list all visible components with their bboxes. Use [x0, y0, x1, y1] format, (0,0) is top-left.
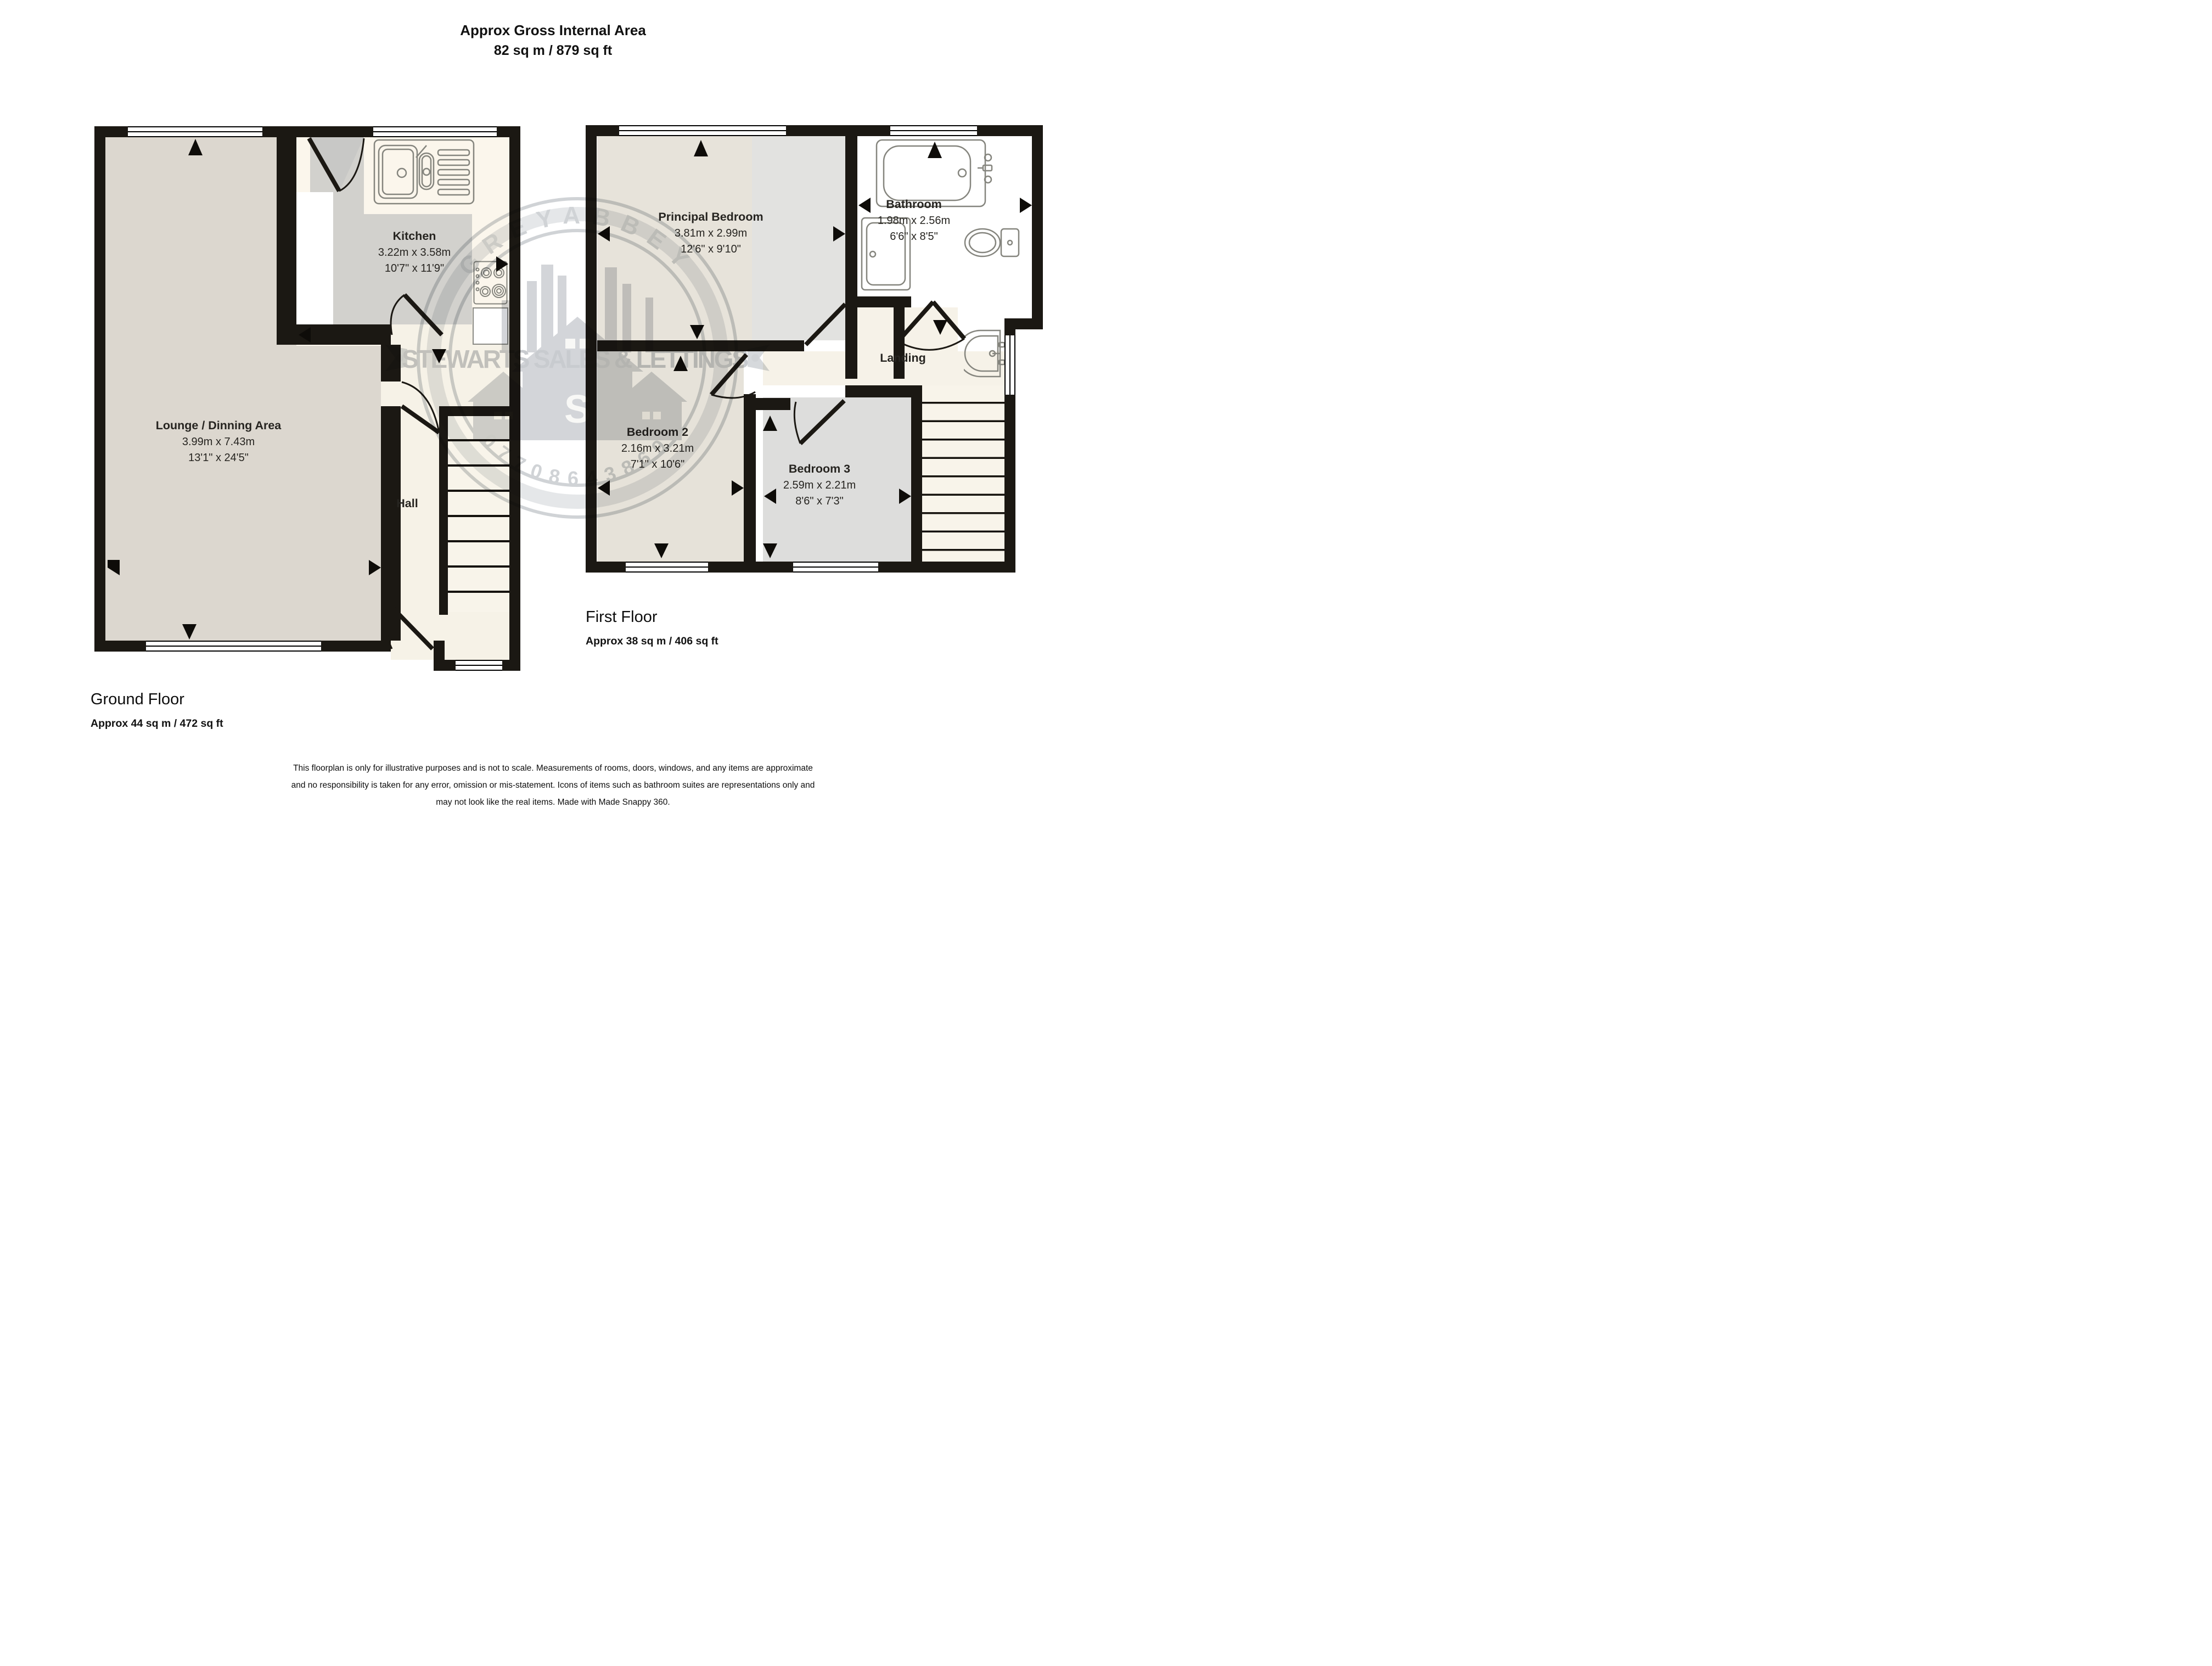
- door-swing-bedroom2: [711, 355, 755, 398]
- lounge-imperial: 13'1" x 24'5": [156, 452, 282, 464]
- room-label-lounge: Lounge / Dinning Area 3.99m x 7.43m 13'1…: [156, 419, 282, 464]
- door-swing-back: [309, 137, 364, 191]
- disclaimer: This floorplan is only for illustrative …: [0, 760, 1106, 811]
- door-swing-front: [386, 608, 433, 649]
- first-floor-heading: First Floor Approx 38 sq m / 406 sq ft: [586, 608, 718, 648]
- ground-floor-title: Ground Floor: [91, 691, 223, 709]
- disclaimer-line1: This floorplan is only for illustrative …: [0, 760, 1106, 777]
- direction-markers-ground: [108, 139, 508, 640]
- kitchen-metric: 3.22m x 3.58m: [378, 246, 451, 259]
- room-label-landing: Landing: [880, 351, 926, 365]
- bedroom2-name: Bedroom 2: [621, 425, 694, 439]
- principal-bedroom-name: Principal Bedroom: [658, 210, 763, 224]
- ground-floor-heading: Ground Floor Approx 44 sq m / 472 sq ft: [91, 691, 223, 730]
- room-label-bedroom2: Bedroom 2 2.16m x 3.21m 7'1" x 10'6": [621, 425, 694, 471]
- door-swing-principal-bedroom: [806, 304, 850, 345]
- door-swing-lounge: [402, 382, 439, 433]
- principal-bedroom-imperial: 12'6" x 9'10": [658, 243, 763, 256]
- lounge-name: Lounge / Dinning Area: [156, 419, 282, 433]
- disclaimer-line3: may not look like the real items. Made w…: [0, 794, 1106, 811]
- first-floor-title: First Floor: [586, 608, 718, 626]
- floorplan-page: Approx Gross Internal Area 82 sq m / 879…: [0, 0, 1106, 833]
- door-swing-bedroom3: [794, 401, 844, 444]
- room-label-hall: Hall: [396, 497, 418, 511]
- ground-floor-area: Approx 44 sq m / 472 sq ft: [91, 717, 223, 730]
- bedroom3-imperial: 8'6" x 7'3": [783, 495, 856, 508]
- bathroom-metric: 1.98m x 2.56m: [878, 215, 950, 227]
- title-line2: 82 sq m / 879 sq ft: [0, 43, 1106, 59]
- bedroom2-imperial: 7'1" x 10'6": [621, 458, 694, 471]
- disclaimer-line2: and no responsibility is taken for any e…: [0, 777, 1106, 794]
- title-line1: Approx Gross Internal Area: [0, 22, 1106, 39]
- lounge-metric: 3.99m x 7.43m: [156, 436, 282, 448]
- door-swing-bathroom: [898, 302, 964, 350]
- landing-name: Landing: [880, 351, 926, 365]
- bedroom2-metric: 2.16m x 3.21m: [621, 442, 694, 455]
- kitchen-name: Kitchen: [378, 229, 451, 243]
- bathroom-name: Bathroom: [878, 198, 950, 211]
- hall-name: Hall: [396, 497, 418, 511]
- bathroom-imperial: 6'6" x 8'5": [878, 231, 950, 243]
- principal-bedroom-metric: 3.81m x 2.99m: [658, 227, 763, 240]
- kitchen-imperial: 10'7" x 11'9": [378, 262, 451, 275]
- room-label-bathroom: Bathroom 1.98m x 2.56m 6'6" x 8'5": [878, 198, 950, 243]
- gross-internal-area-title: Approx Gross Internal Area 82 sq m / 879…: [0, 22, 1106, 59]
- door-swing-kitchen: [391, 295, 442, 335]
- first-floor-area: Approx 38 sq m / 406 sq ft: [586, 635, 718, 648]
- bedroom3-metric: 2.59m x 2.21m: [783, 479, 856, 492]
- room-label-principal-bedroom: Principal Bedroom 3.81m x 2.99m 12'6" x …: [658, 210, 763, 256]
- bedroom3-name: Bedroom 3: [783, 462, 856, 476]
- room-label-bedroom3: Bedroom 3 2.59m x 2.21m 8'6" x 7'3": [783, 462, 856, 508]
- room-label-kitchen: Kitchen 3.22m x 3.58m 10'7" x 11'9": [378, 229, 451, 275]
